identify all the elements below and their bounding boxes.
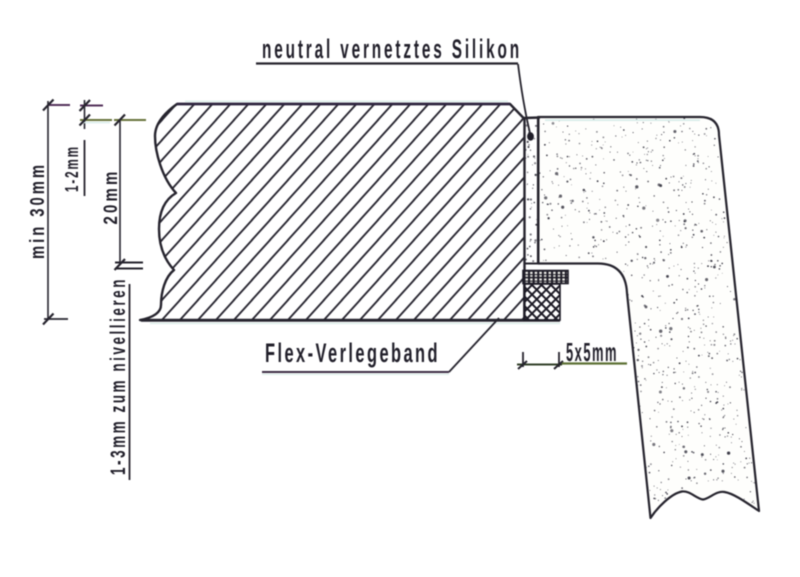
svg-text:Flex-Verlegeband: Flex-Verlegeband xyxy=(265,338,440,368)
svg-text:20mm: 20mm xyxy=(101,169,122,225)
svg-text:1-2mm: 1-2mm xyxy=(62,145,82,192)
svg-text:1-3mm zum nivellieren: 1-3mm zum nivellieren xyxy=(106,277,130,475)
svg-text:5x5mm: 5x5mm xyxy=(566,337,618,367)
svg-text:min 30mm: min 30mm xyxy=(27,162,49,259)
svg-text:neutral vernetztes Silikon: neutral vernetztes Silikon xyxy=(262,34,522,64)
